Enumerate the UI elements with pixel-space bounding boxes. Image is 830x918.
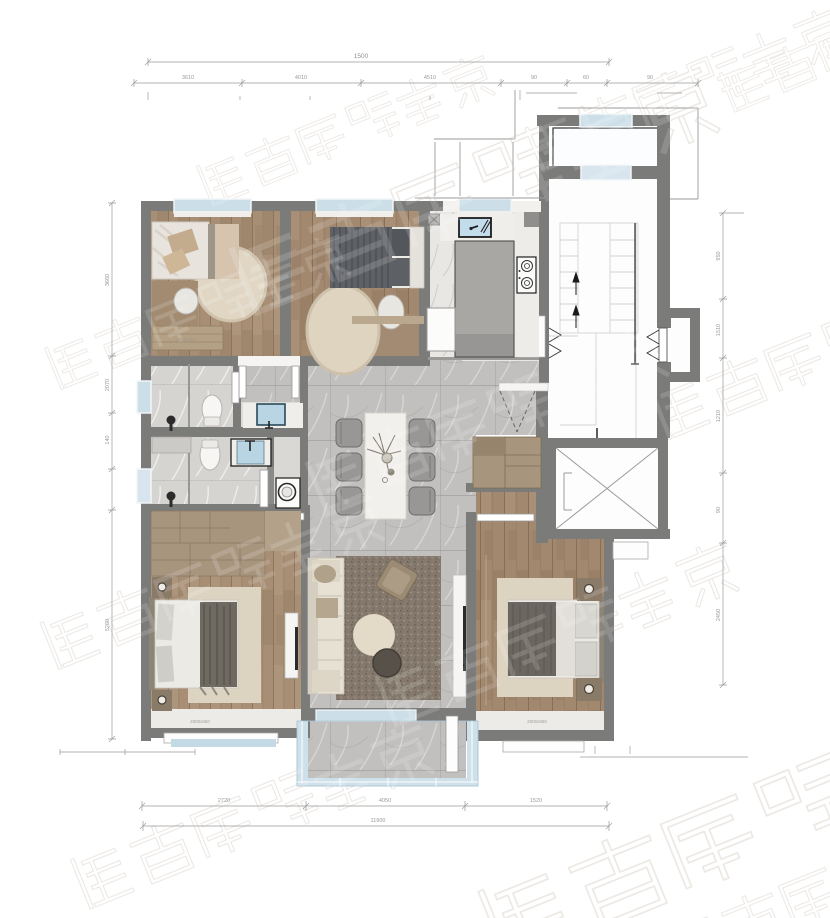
svg-text:4510: 4510 bbox=[424, 75, 436, 81]
svg-text:1500: 1500 bbox=[354, 53, 369, 60]
svg-text:4050: 4050 bbox=[379, 798, 391, 804]
svg-text:4010: 4010 bbox=[295, 75, 307, 81]
svg-text:1510: 1510 bbox=[716, 324, 722, 336]
svg-text:90: 90 bbox=[716, 507, 722, 513]
svg-text:2500x650: 2500x650 bbox=[527, 719, 547, 724]
svg-text:11900: 11900 bbox=[371, 818, 386, 824]
svg-text:5260: 5260 bbox=[105, 619, 111, 631]
svg-text:950: 950 bbox=[716, 251, 722, 260]
svg-text:3660: 3660 bbox=[105, 274, 111, 286]
svg-text:60: 60 bbox=[583, 75, 589, 81]
svg-text:2720: 2720 bbox=[218, 798, 230, 804]
svg-text:3610: 3610 bbox=[182, 75, 194, 81]
svg-text:1600x450: 1600x450 bbox=[176, 337, 196, 342]
svg-text:2070: 2070 bbox=[105, 379, 111, 391]
svg-text:1520: 1520 bbox=[530, 798, 542, 804]
svg-text:1210: 1210 bbox=[716, 410, 722, 422]
svg-text:90: 90 bbox=[531, 75, 537, 81]
svg-text:90: 90 bbox=[647, 75, 653, 81]
svg-text:2800x650: 2800x650 bbox=[190, 719, 210, 724]
svg-text:2450: 2450 bbox=[716, 609, 722, 621]
svg-text:140: 140 bbox=[105, 435, 111, 444]
